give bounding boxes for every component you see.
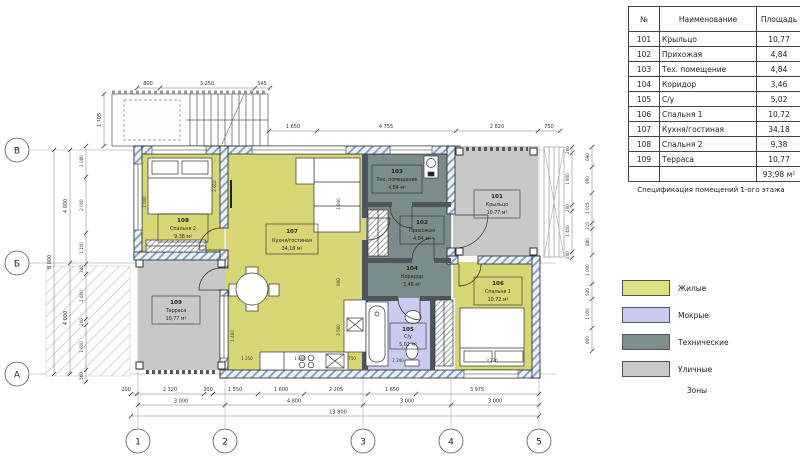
spec-cell-name: Кухня/гостиная [660, 122, 757, 137]
bed-2-icon [148, 158, 212, 214]
legend-swatch-wet [622, 307, 670, 323]
spec-total-empty [629, 167, 660, 182]
grid-col-3: 3 [351, 429, 375, 453]
dim-label: 200 [79, 318, 84, 326]
dim-label: 4 755 [379, 124, 393, 130]
grid-col-label: 4 [448, 438, 454, 448]
room-109-area: 10,77 м² [166, 316, 187, 322]
dim-label: 200 [121, 387, 131, 393]
ramp [544, 147, 564, 257]
dim-label: 1 600 [79, 290, 84, 302]
room-101-num: 101 [491, 194, 503, 200]
wardrobe-102-icon [368, 210, 388, 256]
dim-label: 1 000 [585, 264, 590, 276]
dim-label: 1 650 [385, 387, 399, 393]
dim-label: 3 250 [200, 81, 214, 87]
dim-label: 4 000 [63, 311, 69, 325]
dim-label: 13 800 [329, 410, 347, 416]
spec-cell-num: 109 [629, 152, 660, 167]
dim-label: 1 650 [286, 124, 300, 130]
dim-label: 4 800 [287, 399, 301, 405]
spec-header-num: № [629, 7, 660, 32]
dim-label: 880 [585, 238, 590, 246]
room-104-area: 3,46 м² [403, 282, 421, 288]
spec-cell-area: 9,38 [757, 137, 800, 152]
spec-cell-area: 10,77 [757, 152, 800, 167]
room-spec-table: № Наименование Площадь 101Крыльцо10,77 1… [628, 6, 794, 194]
dim-label: 1 600 [294, 356, 306, 361]
dim-label: 3 000 [174, 399, 188, 405]
spec-cell-area: 10,72 [757, 107, 800, 122]
dim-label: 2 205 [329, 387, 343, 393]
room-101-area: 10,77 м² [487, 210, 508, 216]
spec-total-row: 93,98 м² [629, 167, 800, 182]
floor-plan: 101 Крыльцо 10,77 м² 102 Прихожая 4,84 м… [0, 0, 620, 473]
room-104-num: 104 [406, 266, 418, 272]
grid-row-label: Б [14, 260, 20, 270]
room-103-name: Тех. помещение [375, 177, 417, 183]
exterior-stairs [112, 92, 268, 146]
room-108-num: 108 [177, 218, 189, 224]
grid-col-label: 5 [536, 438, 542, 448]
legend-item-technical: Технические [622, 332, 792, 352]
spec-row: 105С/у5,02 [629, 92, 800, 107]
legend-swatch-street [622, 361, 670, 377]
room-108-name: Спальня 2 [170, 226, 196, 232]
dim-label: 2 240 [392, 358, 404, 363]
spec-cell-name: Спальня 2 [660, 137, 757, 152]
dim-label: 750 [544, 124, 554, 130]
room-109-num: 109 [170, 300, 182, 306]
room-107-name: Кухня/гостиная [272, 238, 312, 244]
dim-label: 900 [336, 278, 341, 286]
spec-cell-area: 10,77 [757, 32, 800, 47]
dim-label: 900 [585, 176, 590, 184]
grid-col-label: 1 [135, 438, 141, 448]
dim-label: 200 [565, 204, 570, 212]
dim-label: 1 550 [228, 387, 242, 393]
dim-label: 215 [585, 222, 590, 230]
spec-cell-area: 34,18 [757, 122, 800, 137]
floor-plan-sheet: 101 Крыльцо 10,77 м² 102 Прихожая 4,84 м… [0, 0, 800, 473]
legend-item-wet: Мокрые [622, 305, 792, 325]
spec-cell-num: 102 [629, 47, 660, 62]
grid-row-v: В [5, 138, 29, 162]
room-107-num: 107 [286, 229, 298, 235]
dim-label: 1 400 [565, 225, 570, 237]
room-107-area: 34,18 м² [282, 246, 303, 252]
spec-cell-num: 107 [629, 122, 660, 137]
spec-cell-num: 105 [629, 92, 660, 107]
spec-row: 109Терраса10,77 [629, 152, 800, 167]
room-109-name: Терраса [165, 308, 187, 314]
grid-row-label: А [14, 371, 21, 381]
zones-legend: Жилые Мокрые Технические Уличные Зоны [622, 278, 792, 395]
dim-label: 2 610 [212, 180, 217, 192]
spec-header-name: Наименование [660, 7, 757, 32]
room-101-name: Крыльцо [486, 202, 508, 208]
room-108-area: 9,38 м² [174, 234, 192, 240]
legend-item-street: Уличные [622, 359, 792, 379]
spec-cell-name: Прихожая [660, 47, 757, 62]
room-102-name: Прихожая [409, 228, 435, 234]
spec-cell-area: 5,02 [757, 92, 800, 107]
grid-row-label: В [14, 147, 20, 157]
room-101-fill [453, 146, 538, 256]
spec-cell-name: Терраса [660, 152, 757, 167]
spec-row: 101Крыльцо10,77 [629, 32, 800, 47]
dim-label: 690 [585, 153, 590, 161]
spec-caption: Спецификация помещений 1-ого этажа [628, 186, 794, 194]
spec-cell-name: Тех. помещение [660, 62, 757, 77]
legend-label: Уличные [678, 365, 712, 374]
dim-label: 800 [143, 81, 153, 87]
spec-cell-name: Спальня 1 [660, 107, 757, 122]
legend-caption: Зоны [622, 386, 772, 395]
dim-label: 545 [257, 81, 267, 87]
room-102-area: 4,84 м² [413, 236, 431, 242]
spec-row: 106Спальня 110,72 [629, 107, 800, 122]
dim-label: 1 705 [97, 113, 103, 127]
boiler-icon [424, 156, 438, 178]
dim-label: 800 [585, 336, 590, 344]
spec-cell-num: 101 [629, 32, 660, 47]
spec-row: 102Прихожая4,84 [629, 47, 800, 62]
spec-row: 107Кухня/гостиная34,18 [629, 122, 800, 137]
spec-total-empty [660, 167, 757, 182]
spec-total-area: 93,98 м² [757, 167, 800, 182]
room-106-num: 106 [492, 281, 504, 287]
room-103-num: 103 [391, 169, 403, 175]
grid-row-b: Б [5, 251, 29, 275]
legend-swatch-residential [622, 280, 670, 296]
dim-label: 1 940 [336, 198, 341, 210]
spec-cell-num: 108 [629, 137, 660, 152]
grid-col-4: 4 [439, 429, 463, 453]
dim-label: 340 [79, 265, 84, 273]
room-104-name: Коридор [401, 274, 423, 280]
legend-swatch-technical [622, 334, 670, 350]
room-109-fill [138, 258, 226, 370]
spec-cell-name: Крыльцо [660, 32, 757, 47]
dim-label: 3 220 [486, 358, 498, 363]
spec-cell-num: 103 [629, 62, 660, 77]
spec-header-row: № Наименование Площадь [629, 7, 800, 32]
dim-label: 4 000 [63, 199, 69, 213]
washbasin-icon [405, 311, 421, 324]
room-106-area: 10,72 м² [488, 297, 509, 303]
legend-label: Технические [678, 338, 729, 347]
spec-cell-name: Коридор [660, 77, 757, 92]
dim-label: 520 [585, 288, 590, 296]
dim-label: 1 460 [230, 330, 235, 342]
bathtub-icon [366, 302, 388, 366]
dim-label: 300 [203, 387, 213, 393]
dim-label: 3 000 [400, 399, 414, 405]
spec-cell-name: С/у [660, 92, 757, 107]
dim-label: 3 000 [488, 399, 502, 405]
dim-label: 3 975 [470, 387, 484, 393]
dim-label: 1 080 [79, 155, 84, 167]
legend-item-residential: Жилые [622, 278, 792, 298]
dim-label: 2 000 [79, 199, 84, 211]
room-102-num: 102 [416, 220, 428, 226]
dim-label: 560 [79, 372, 84, 380]
room-103-area: 4,84 м² [388, 185, 406, 191]
dim-label: 200 [565, 251, 570, 259]
grid-col-label: 3 [360, 438, 366, 448]
legend-label: Мокрые [678, 311, 709, 320]
spec-row: 103Тех. помещение4,84 [629, 62, 800, 77]
room-106-name: Спальня 1 [485, 289, 511, 295]
dim-label: 2 820 [490, 124, 504, 130]
spec-cell-area: 3,46 [757, 77, 800, 92]
legend-label: Жилые [678, 284, 706, 293]
spec-cell-area: 4,84 [757, 62, 800, 77]
room-105-area: 5,02 м² [399, 342, 417, 348]
grid-row-a: А [5, 362, 29, 386]
dim-label: 1 100 [79, 242, 84, 254]
dim-label: 2 320 [163, 387, 177, 393]
dim-label: 1 600 [79, 341, 84, 353]
dim-label: 1 000 [585, 308, 590, 320]
spec-row: 108Спальня 29,38 [629, 137, 800, 152]
grid-col-1: 1 [126, 429, 150, 453]
grid-col-5: 5 [527, 429, 551, 453]
dim-label: 2 560 [336, 324, 341, 336]
grid-col-2: 2 [213, 429, 237, 453]
dim-label: 2 000 [142, 196, 147, 208]
wardrobe-106-icon [435, 300, 453, 366]
dim-label: 750 [348, 356, 356, 361]
grid-col-label: 2 [222, 438, 228, 448]
spec-cell-area: 4,84 [757, 47, 800, 62]
dim-label: 1 800 [565, 173, 570, 185]
dim-label: 1 250 [241, 356, 253, 361]
dim-label: 1 600 [274, 387, 288, 393]
dim-label: 200 [565, 146, 570, 154]
dim-label: 1 015 [585, 202, 590, 214]
spec-header-area: Площадь [757, 7, 800, 32]
dim-label: 8 000 [47, 255, 53, 269]
spec-row: 104Коридор3,46 [629, 77, 800, 92]
spec-cell-num: 106 [629, 107, 660, 122]
room-105-num: 105 [402, 327, 414, 333]
spec-cell-num: 104 [629, 77, 660, 92]
paving-area [46, 266, 130, 376]
room-105-name: С/у [404, 334, 412, 340]
